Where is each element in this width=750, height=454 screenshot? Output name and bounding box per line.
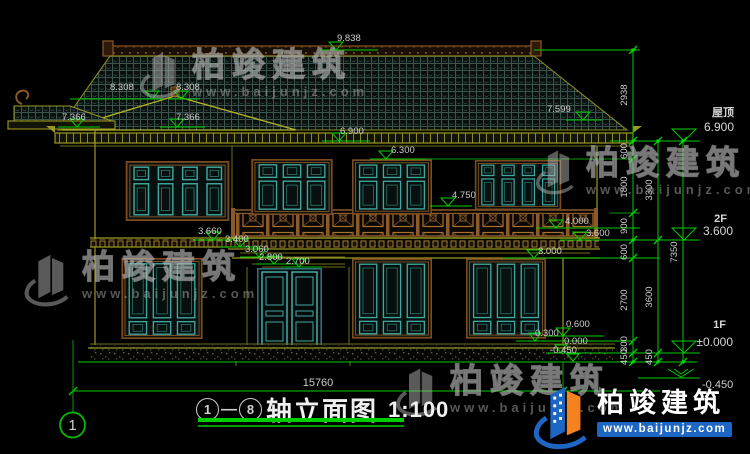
elev-6300: 6.300	[391, 145, 415, 156]
dimension-chain-right	[629, 46, 687, 366]
label-1f-value: ±0.000	[696, 335, 733, 349]
label-roof-value: 6.900	[704, 120, 734, 134]
vdim-2938: 2938	[619, 84, 630, 105]
vdim-450a: 450	[619, 349, 630, 365]
vdim-600b: 600	[619, 244, 630, 260]
elev-8308-b: 8.308	[176, 82, 200, 93]
vdim-450b: 450	[644, 349, 655, 365]
brand-footer: 柏竣建筑 www.baijunjz.com	[531, 381, 732, 451]
ridge-ornament-left	[103, 41, 113, 56]
label-2f-value: 3.600	[703, 224, 733, 238]
entry-door	[258, 269, 321, 349]
window-2f-center-2	[353, 160, 431, 214]
axis-bubble-1: 1	[60, 413, 85, 438]
gable-ornament	[16, 91, 28, 104]
elev-7366-b: 7.366	[176, 112, 200, 123]
vertical-dim-texts: 2938 600 1800 900 600 2700 300 450 3300 …	[619, 84, 680, 365]
vdim-600a: 600	[619, 143, 630, 159]
vdim-900: 900	[619, 218, 630, 234]
title-axis-dash: —	[221, 401, 237, 419]
window-2f-left	[127, 162, 229, 220]
window-1f-left	[122, 259, 201, 338]
label-1f: 1F	[713, 319, 726, 331]
foundation	[88, 344, 615, 361]
elev-2700: 2.700	[286, 256, 310, 267]
ridge-ornament-right	[531, 41, 541, 56]
vdim-3300: 3300	[644, 179, 655, 200]
elev-4000: 4.000	[565, 216, 589, 227]
title-underline-thin	[198, 425, 404, 427]
elev-3660: 3.660	[198, 226, 222, 237]
window-1f-right	[467, 259, 545, 337]
elev-m0450: -0.450	[550, 345, 577, 356]
elev-7366-a: 7.366	[62, 112, 86, 123]
elev-0300: 0.300	[535, 328, 559, 339]
elev-3600: 3.600	[586, 228, 610, 239]
brand-name: 柏竣建筑	[597, 389, 732, 419]
total-width-dim: 15760	[303, 377, 334, 389]
elev-7599: 7.599	[547, 104, 571, 115]
vdim-1800: 1800	[619, 176, 630, 197]
elev-3000: 3.000	[538, 246, 562, 257]
brand-site: www.baijunjz.com	[597, 422, 732, 437]
axis-bubble-label: 1	[68, 417, 76, 434]
cad-canvas: 1 9.838 8.308 8.308 7.366 7.366 7.599 6.…	[0, 0, 750, 454]
title-underline-thick	[198, 418, 404, 422]
baijun-logo-icon	[531, 381, 593, 451]
elev-8308-a: 8.308	[110, 82, 134, 93]
window-2f-right	[476, 161, 561, 210]
window-1f-center	[353, 259, 431, 337]
vdim-3600: 3600	[644, 286, 655, 307]
elev-6900: 6.900	[340, 126, 364, 137]
elev-0600: 0.600	[566, 319, 590, 330]
vdim-2700: 2700	[619, 289, 630, 310]
drawing-title: 1 — 8 轴立面图 1:100	[196, 391, 449, 428]
title-name: 轴立面图	[266, 391, 378, 428]
label-roof: 屋顶	[712, 106, 734, 119]
elev-2800: 2.800	[259, 252, 283, 263]
window-2f-center-1	[252, 160, 332, 214]
vdim-7350: 7350	[669, 241, 680, 262]
elev-9838: 9.838	[337, 33, 361, 44]
elev-4750: 4.750	[452, 190, 476, 201]
